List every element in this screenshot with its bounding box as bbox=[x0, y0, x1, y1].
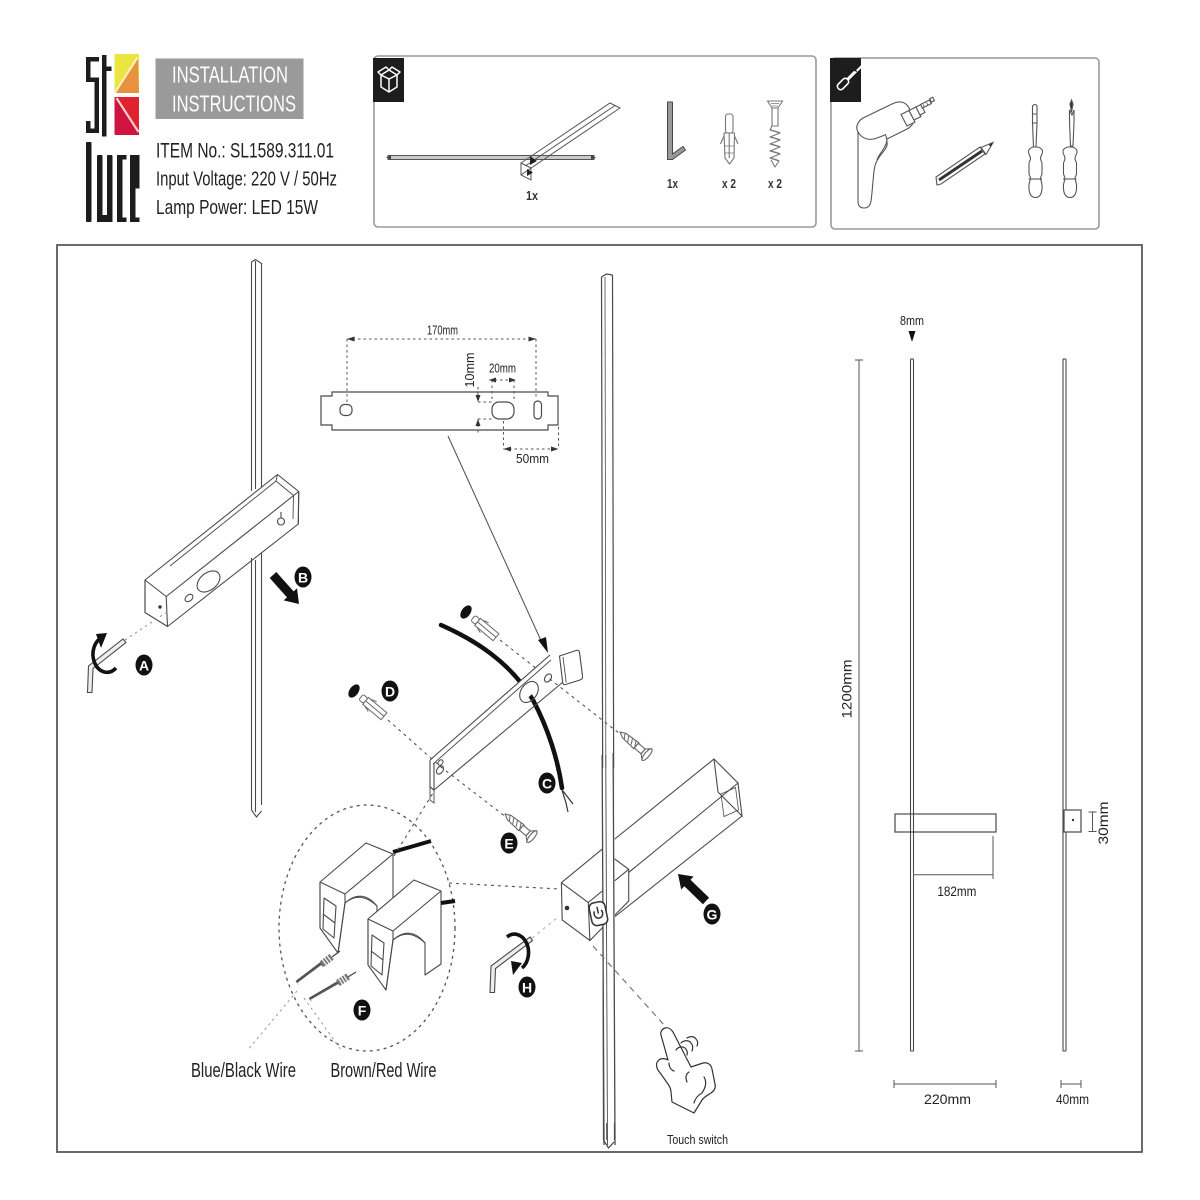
svg-text:Input Voltage: 220 V / 50Hz: Input Voltage: 220 V / 50Hz bbox=[156, 169, 337, 191]
svg-text:x 2: x 2 bbox=[768, 176, 782, 191]
svg-text:Brown/Red Wire: Brown/Red Wire bbox=[331, 1060, 437, 1082]
svg-text:A: A bbox=[139, 658, 149, 674]
svg-text:INSTALLATION: INSTALLATION bbox=[172, 62, 288, 88]
svg-text:ITEM No.: SL1589.311.01: ITEM No.: SL1589.311.01 bbox=[156, 139, 334, 163]
svg-text:1x: 1x bbox=[667, 176, 679, 191]
svg-text:G: G bbox=[707, 907, 718, 923]
svg-text:8mm: 8mm bbox=[900, 313, 924, 328]
svg-text:INSTRUCTIONS: INSTRUCTIONS bbox=[172, 91, 296, 117]
svg-text:Touch switch: Touch switch bbox=[667, 1132, 728, 1147]
svg-text:B: B bbox=[298, 570, 308, 586]
svg-text:H: H bbox=[522, 980, 532, 996]
svg-text:182mm: 182mm bbox=[937, 883, 976, 899]
svg-text:170mm: 170mm bbox=[427, 323, 458, 338]
svg-text:10mm: 10mm bbox=[462, 353, 477, 388]
svg-text:220mm: 220mm bbox=[924, 1091, 971, 1107]
svg-text:D: D bbox=[385, 684, 395, 700]
svg-text:Blue/Black Wire: Blue/Black Wire bbox=[191, 1060, 296, 1082]
svg-text:1200mm: 1200mm bbox=[839, 660, 855, 719]
svg-text:40mm: 40mm bbox=[1056, 1091, 1089, 1107]
svg-text:1x: 1x bbox=[526, 188, 539, 203]
svg-text:50mm: 50mm bbox=[516, 451, 549, 466]
svg-text:C: C bbox=[542, 776, 552, 792]
svg-text:E: E bbox=[504, 836, 513, 852]
svg-text:F: F bbox=[358, 1003, 367, 1019]
svg-text:Lamp Power: LED 15W: Lamp Power: LED 15W bbox=[156, 197, 318, 219]
svg-text:20mm: 20mm bbox=[489, 361, 516, 376]
svg-text:x 2: x 2 bbox=[722, 176, 736, 191]
svg-text:30mm: 30mm bbox=[1095, 802, 1111, 845]
